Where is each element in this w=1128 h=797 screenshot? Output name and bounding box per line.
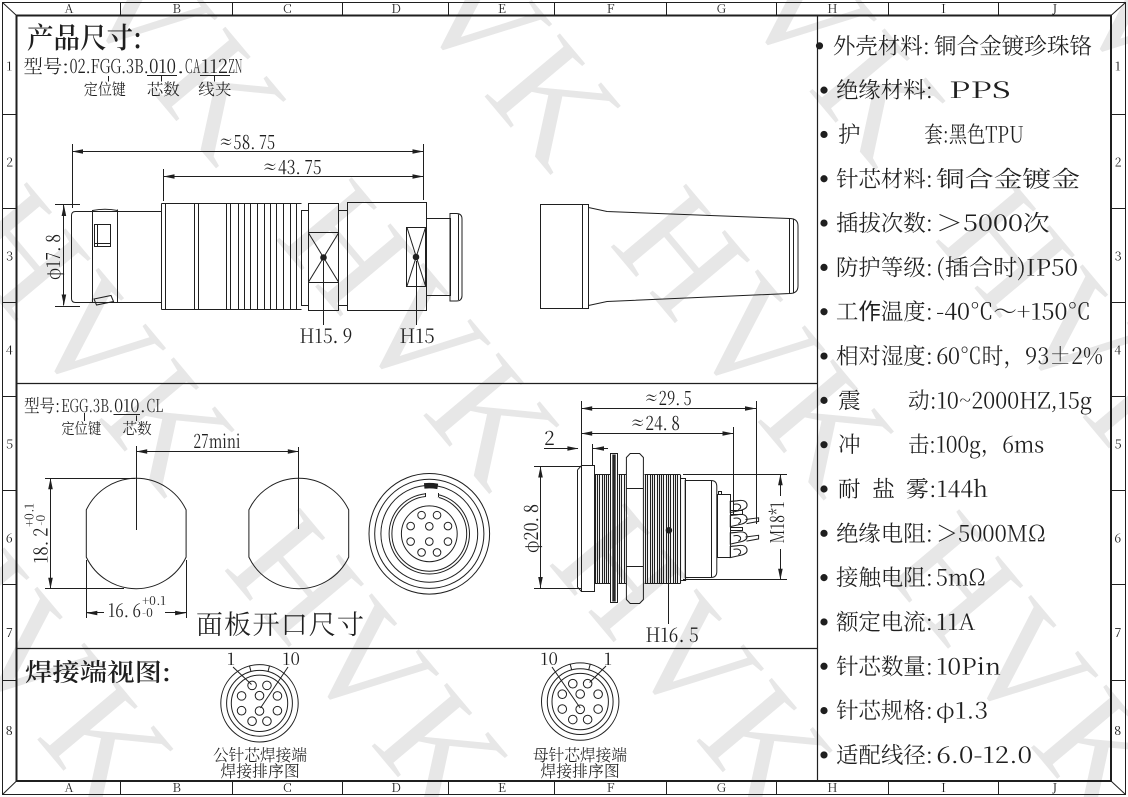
svg-text:8: 8 bbox=[1115, 721, 1122, 739]
svg-text:针芯规格:: 针芯规格: bbox=[836, 693, 933, 726]
svg-text:耐: 耐 bbox=[838, 471, 861, 504]
svg-text:动:10~2000HZ,15g: 动:10~2000HZ,15g bbox=[908, 382, 1092, 415]
svg-text:I: I bbox=[941, 0, 946, 17]
svg-text:1: 1 bbox=[227, 645, 235, 670]
svg-text:H: H bbox=[827, 778, 838, 796]
svg-text:型号:: 型号: bbox=[24, 392, 60, 418]
svg-text:18. 2: 18. 2 bbox=[27, 528, 54, 564]
svg-text:焊接端视图:: 焊接端视图: bbox=[25, 653, 171, 689]
svg-text:-0: -0 bbox=[31, 514, 49, 525]
svg-text:7: 7 bbox=[1115, 623, 1122, 641]
svg-text:J: J bbox=[1051, 0, 1057, 17]
svg-text:ZN: ZN bbox=[229, 52, 243, 79]
svg-text:A: A bbox=[65, 778, 74, 796]
svg-text:60℃时，93±2%: 60℃时，93±2% bbox=[936, 338, 1103, 371]
svg-text:φ20. 8: φ20. 8 bbox=[517, 504, 544, 553]
svg-text:接触电阻:: 接触电阻: bbox=[836, 560, 933, 593]
svg-text:A: A bbox=[65, 0, 74, 17]
svg-text:芯数: 芯数 bbox=[123, 417, 152, 439]
svg-text:3: 3 bbox=[1115, 247, 1122, 265]
svg-text:02.FGG.3B.: 02.FGG.3B. bbox=[70, 52, 149, 79]
svg-text:击:100g，6ms: 击:100g，6ms bbox=[908, 427, 1044, 460]
svg-text:1: 1 bbox=[7, 57, 13, 75]
svg-text:PPS: PPS bbox=[949, 72, 1011, 105]
svg-text:≈43. 75: ≈43. 75 bbox=[262, 153, 322, 180]
svg-text:6.0-12.0: 6.0-12.0 bbox=[936, 737, 1032, 770]
svg-text:定位键: 定位键 bbox=[84, 77, 126, 100]
svg-text:焊接排序图: 焊接排序图 bbox=[221, 758, 300, 782]
svg-text:H15: H15 bbox=[400, 321, 435, 349]
svg-text:外壳材料:: 外壳材料: bbox=[833, 28, 930, 61]
svg-text:≈24. 8: ≈24. 8 bbox=[630, 409, 680, 436]
svg-text:额定电流:: 额定电流: bbox=[836, 604, 933, 637]
svg-text:工作温度:: 工作温度: bbox=[836, 294, 933, 327]
svg-text:16. 6: 16. 6 bbox=[108, 596, 141, 623]
svg-text:27mini: 27mini bbox=[194, 427, 241, 454]
svg-text:10: 10 bbox=[541, 645, 558, 670]
svg-text:H16. 5: H16. 5 bbox=[646, 620, 699, 648]
svg-text:绝缘电阻:: 绝缘电阻: bbox=[836, 515, 933, 548]
svg-text:11A: 11A bbox=[936, 604, 976, 637]
svg-text:F: F bbox=[607, 0, 615, 17]
svg-text:10: 10 bbox=[283, 645, 300, 670]
svg-text:5mΩ: 5mΩ bbox=[936, 560, 985, 593]
svg-text:C: C bbox=[283, 0, 292, 17]
svg-text:≈29. 5: ≈29. 5 bbox=[644, 384, 692, 411]
svg-text:4: 4 bbox=[1115, 341, 1123, 359]
svg-text:产品尺寸:: 产品尺寸: bbox=[27, 16, 142, 57]
svg-text:盐: 盐 bbox=[872, 471, 895, 504]
svg-text:＞5000MΩ: ＞5000MΩ bbox=[936, 515, 1045, 548]
svg-text:8: 8 bbox=[6, 721, 13, 739]
svg-text:防护等级:: 防护等级: bbox=[836, 249, 933, 282]
svg-text:7: 7 bbox=[6, 623, 13, 641]
svg-text:I: I bbox=[941, 778, 946, 796]
svg-text:EGG.3B.: EGG.3B. bbox=[61, 392, 113, 418]
svg-text:3: 3 bbox=[6, 247, 13, 265]
svg-text:010: 010 bbox=[149, 52, 176, 79]
svg-text:套:黑色TPU: 套:黑色TPU bbox=[925, 116, 1024, 149]
svg-text:2: 2 bbox=[544, 424, 555, 451]
svg-text:.: . bbox=[140, 392, 147, 418]
svg-text:针芯数量:: 针芯数量: bbox=[836, 648, 933, 681]
svg-text:焊接排序图: 焊接排序图 bbox=[541, 758, 620, 782]
svg-text:E: E bbox=[498, 778, 506, 796]
svg-text:φ1.3: φ1.3 bbox=[936, 693, 988, 726]
svg-text:2: 2 bbox=[6, 153, 13, 171]
svg-text:≈58. 75: ≈58. 75 bbox=[219, 128, 276, 155]
svg-text:芯数: 芯数 bbox=[147, 77, 180, 100]
svg-text:G: G bbox=[717, 0, 726, 17]
svg-text:冲: 冲 bbox=[838, 427, 861, 460]
svg-text:-40℃～+150℃: -40℃～+150℃ bbox=[936, 294, 1091, 327]
svg-text:-0: -0 bbox=[142, 603, 153, 621]
svg-text:CL: CL bbox=[147, 392, 164, 418]
svg-text:6: 6 bbox=[6, 529, 13, 547]
svg-text:绝缘材料:: 绝缘材料: bbox=[836, 72, 933, 105]
svg-text:CA: CA bbox=[185, 52, 201, 79]
svg-text:.: . bbox=[177, 52, 184, 79]
svg-text:H: H bbox=[827, 0, 838, 17]
svg-text:型号:: 型号: bbox=[24, 52, 69, 79]
svg-text:112: 112 bbox=[201, 52, 228, 79]
svg-text:插拔次数:: 插拔次数: bbox=[836, 205, 933, 238]
svg-text:H15. 9: H15. 9 bbox=[300, 321, 353, 349]
svg-text:护: 护 bbox=[838, 116, 861, 149]
svg-text:(插合时)IP50: (插合时)IP50 bbox=[936, 249, 1078, 282]
svg-text:D: D bbox=[391, 0, 401, 17]
svg-text:G: G bbox=[717, 778, 726, 796]
svg-text:J: J bbox=[1051, 778, 1057, 796]
svg-text:定位键: 定位键 bbox=[61, 417, 101, 439]
svg-text:6: 6 bbox=[1115, 529, 1122, 547]
svg-text:5: 5 bbox=[6, 435, 13, 453]
svg-text:铜合金镀金: 铜合金镀金 bbox=[936, 161, 1080, 194]
svg-text:震: 震 bbox=[838, 382, 861, 415]
svg-text:适配线径:: 适配线径: bbox=[836, 737, 933, 770]
svg-text:φ17. 8: φ17. 8 bbox=[39, 234, 66, 280]
svg-text:10Pin: 10Pin bbox=[936, 648, 1001, 681]
svg-text:D: D bbox=[391, 778, 401, 796]
svg-text:4: 4 bbox=[6, 341, 14, 359]
svg-text:B: B bbox=[172, 778, 180, 796]
svg-text:面板开口尺寸: 面板开口尺寸 bbox=[196, 603, 365, 642]
svg-text:B: B bbox=[172, 0, 180, 17]
svg-text:2: 2 bbox=[1115, 153, 1122, 171]
svg-text:M18*1: M18*1 bbox=[763, 501, 790, 543]
svg-text:线夹: 线夹 bbox=[198, 77, 231, 100]
svg-text:E: E bbox=[498, 0, 506, 17]
svg-text:1: 1 bbox=[1115, 57, 1121, 75]
svg-text:铜合金镀珍珠铬: 铜合金镀珍珠铬 bbox=[934, 28, 1092, 61]
svg-text:相对湿度:: 相对湿度: bbox=[836, 338, 933, 371]
svg-text:雾:144h: 雾:144h bbox=[906, 471, 988, 504]
svg-text:5: 5 bbox=[1115, 435, 1122, 453]
svg-text:针芯材料:: 针芯材料: bbox=[836, 161, 933, 194]
svg-text:＞5000次: ＞5000次 bbox=[936, 205, 1050, 238]
